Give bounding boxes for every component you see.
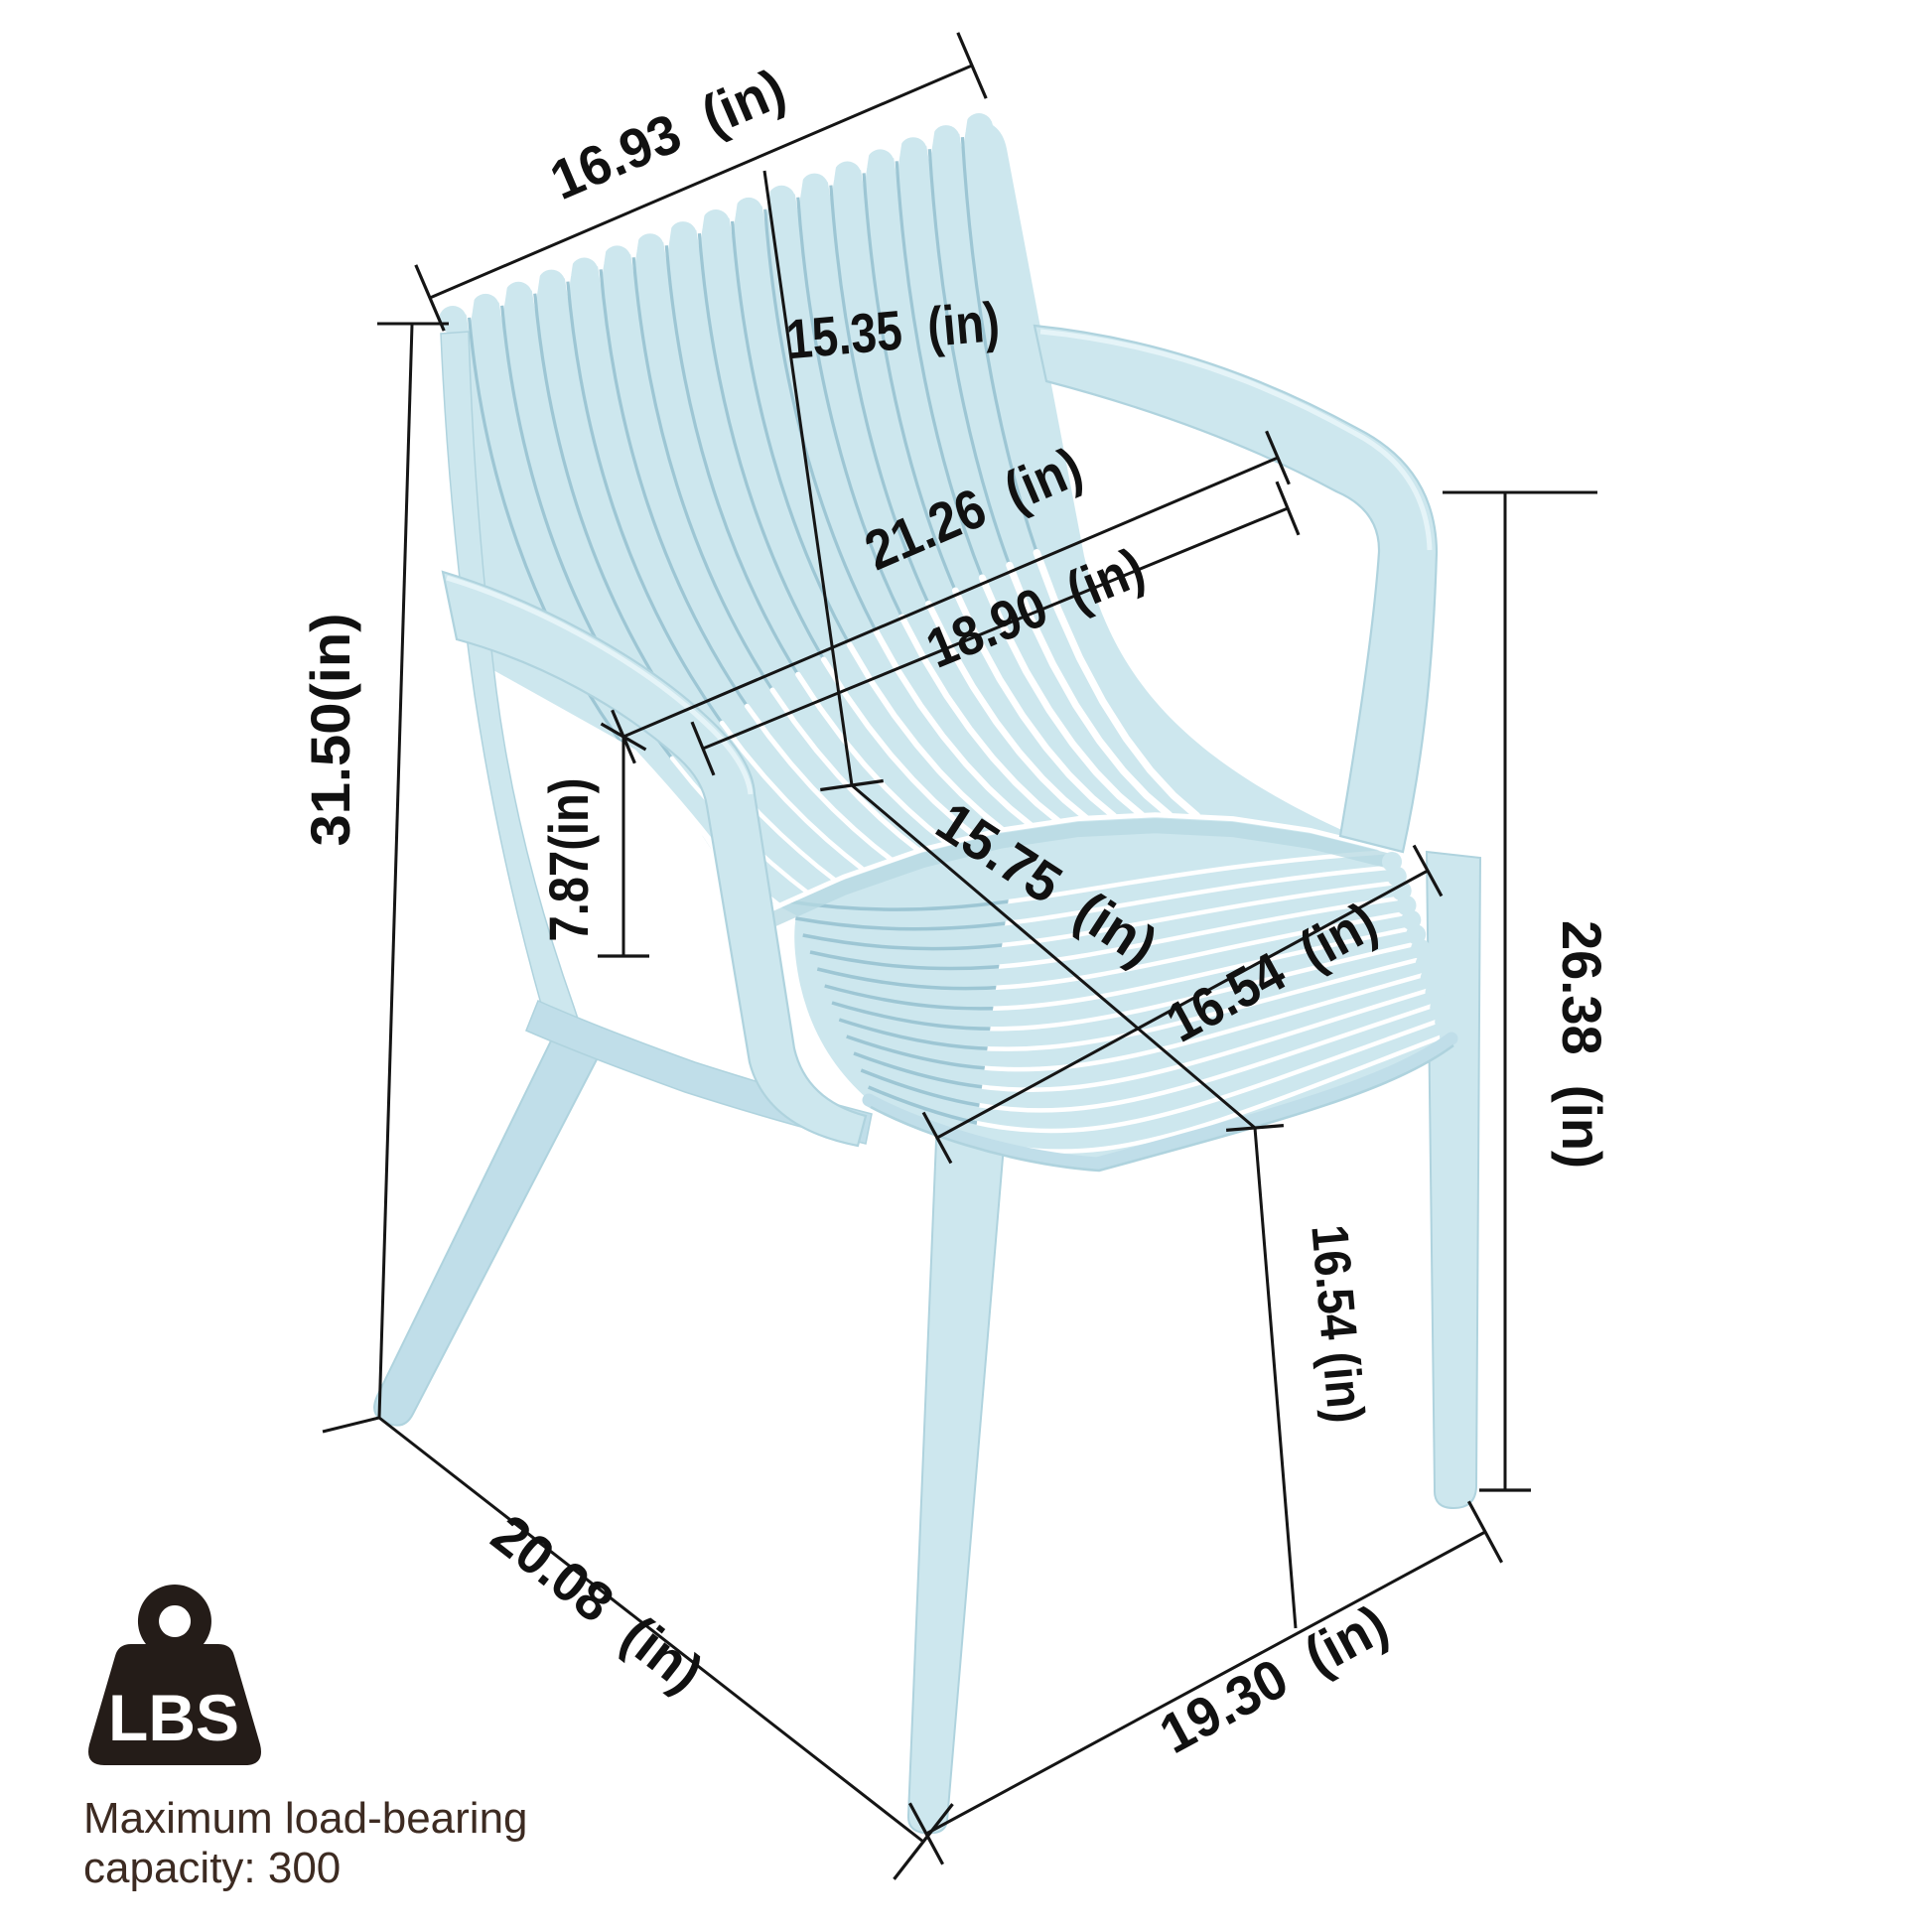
svg-text:LBS: LBS bbox=[108, 1681, 239, 1754]
svg-text:Maximum load-bearing: Maximum load-bearing bbox=[83, 1794, 528, 1843]
svg-text:capacity: 300: capacity: 300 bbox=[83, 1844, 341, 1892]
svg-text:7.87(in): 7.87(in) bbox=[537, 778, 600, 942]
svg-text:31.50(in): 31.50(in) bbox=[299, 614, 361, 847]
svg-text:26.38 (in): 26.38 (in) bbox=[1551, 920, 1613, 1169]
